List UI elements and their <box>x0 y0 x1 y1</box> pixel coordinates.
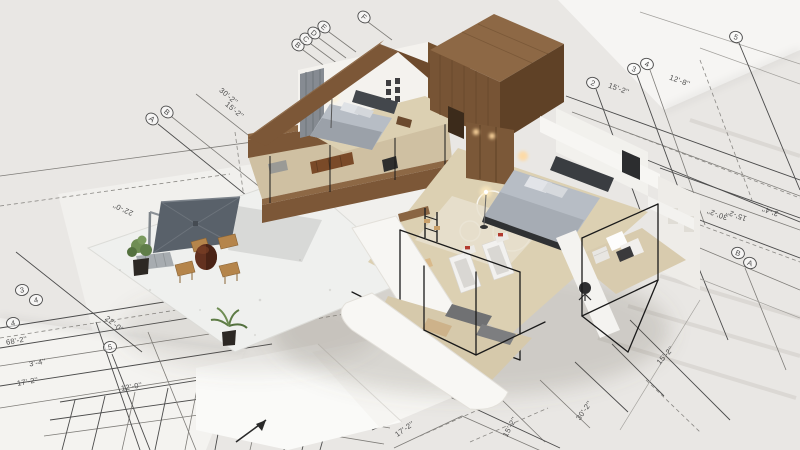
architectural-render-scene: 30'-2''15'-2''15'-2''12'-8''30'-2''15'-2… <box>0 0 800 450</box>
right-exterior-wall <box>658 176 700 290</box>
scene-svg: 30'-2''15'-2''15'-2''12'-8''30'-2''15'-2… <box>0 0 800 450</box>
sconce-light <box>518 151 528 161</box>
patio-table <box>195 244 217 270</box>
office-chair <box>579 282 591 301</box>
